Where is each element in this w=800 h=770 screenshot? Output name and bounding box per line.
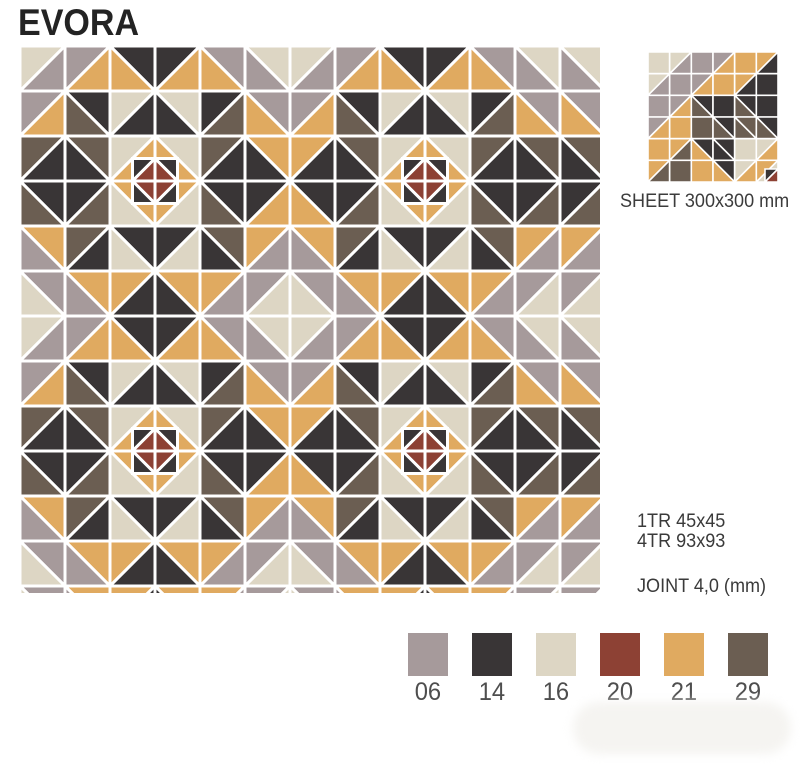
palette-item-16: 16 xyxy=(536,633,576,707)
palette-item-14: 14 xyxy=(472,633,512,707)
color-code-label: 06 xyxy=(415,678,441,707)
color-code-label: 16 xyxy=(543,678,569,707)
palette-item-06: 06 xyxy=(408,633,448,707)
spec-4tr: 4TR 93x93 xyxy=(637,532,766,552)
palette-item-21: 21 xyxy=(664,633,704,707)
spec-joint: JOINT 4,0 (mm) xyxy=(637,577,766,597)
color-swatch-14 xyxy=(472,633,512,676)
page-shadow xyxy=(573,702,791,754)
sheet-size-label: SHEET 300x300 mm xyxy=(620,191,789,213)
sheet-preview-image xyxy=(648,52,778,182)
spec-1tr: 1TR 45x45 xyxy=(637,512,766,532)
page-title: EVORA xyxy=(18,2,139,44)
tile-specs: 1TR 45x45 4TR 93x93 JOINT 4,0 (mm) xyxy=(637,512,766,597)
palette-item-29: 29 xyxy=(728,633,768,707)
color-swatch-16 xyxy=(536,633,576,676)
catalog-page: EVORA SHEET 300x300 mm 1TR 45x45 4TR 93x… xyxy=(0,0,800,770)
color-swatch-21 xyxy=(664,633,704,676)
color-swatch-06 xyxy=(408,633,448,676)
color-swatch-29 xyxy=(728,633,768,676)
color-swatch-20 xyxy=(600,633,640,676)
tile-pattern-image xyxy=(20,46,600,593)
color-code-label: 14 xyxy=(479,678,505,707)
palette-item-20: 20 xyxy=(600,633,640,707)
color-palette: 061416202129 xyxy=(408,633,768,707)
